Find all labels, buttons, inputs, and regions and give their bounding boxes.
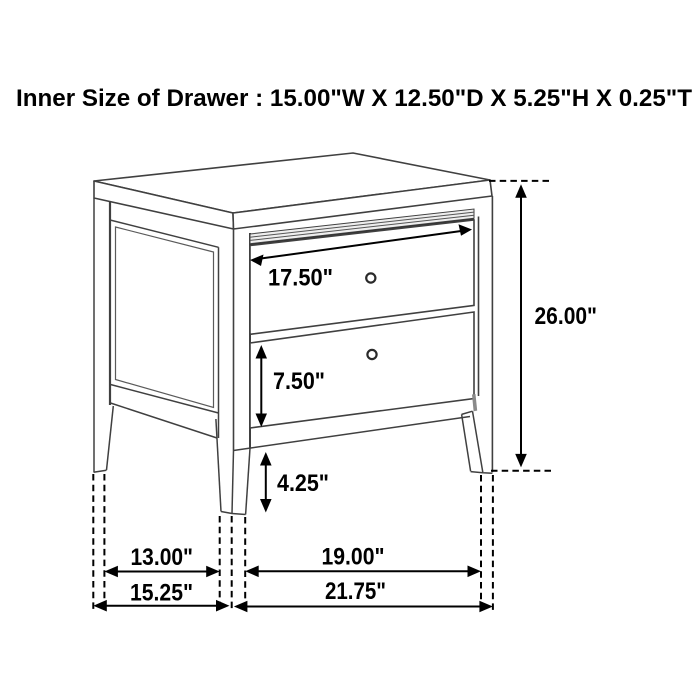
svg-text:26.00": 26.00": [535, 303, 598, 330]
svg-text:4.25": 4.25": [277, 470, 329, 497]
svg-text:17.50": 17.50": [268, 265, 333, 292]
svg-text:13.00": 13.00": [131, 544, 194, 571]
svg-text:Inner Size of Drawer : 15.00"W: Inner Size of Drawer : 15.00"W X 12.50"D…: [16, 85, 692, 112]
svg-text:15.25": 15.25": [130, 580, 193, 607]
svg-text:7.50": 7.50": [273, 368, 325, 395]
svg-text:21.75": 21.75": [325, 578, 386, 605]
svg-text:19.00": 19.00": [322, 544, 385, 571]
